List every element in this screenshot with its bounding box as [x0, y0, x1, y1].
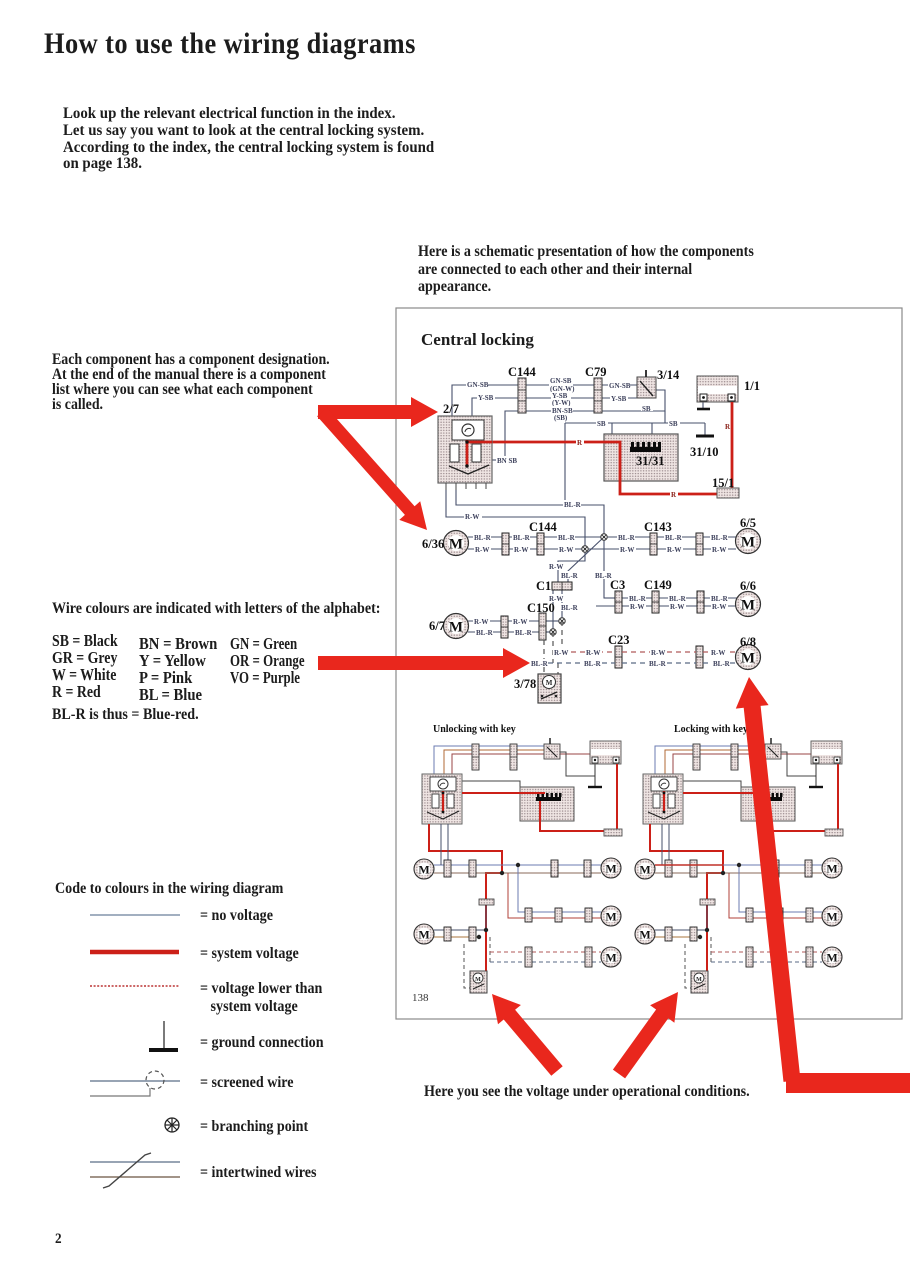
svg-text:6/36: 6/36: [422, 537, 444, 551]
svg-text:BL-R: BL-R: [561, 572, 579, 580]
svg-text:R-W: R-W: [630, 603, 644, 611]
svg-text:R-W: R-W: [549, 563, 563, 571]
svg-text:BL-R: BL-R: [564, 501, 582, 509]
svg-text:C79: C79: [585, 365, 607, 379]
svg-text:R-W: R-W: [554, 649, 568, 657]
svg-text:GN-SB: GN-SB: [467, 381, 489, 389]
svg-text:R-W: R-W: [712, 546, 726, 554]
svg-text:SB: SB: [597, 420, 606, 428]
svg-text:Y-SB: Y-SB: [478, 394, 494, 402]
svg-text:1/1: 1/1: [744, 379, 760, 393]
svg-text:R-W: R-W: [465, 513, 479, 521]
svg-text:Unlocking with key: Unlocking with key: [433, 724, 516, 735]
svg-text:BL-R: BL-R: [711, 595, 729, 603]
svg-text:6/7: 6/7: [429, 619, 445, 633]
svg-text:BL-R: BL-R: [513, 534, 531, 542]
svg-text:BL-R: BL-R: [649, 660, 667, 668]
svg-text:BL-R: BL-R: [595, 572, 613, 580]
svg-text:C23: C23: [608, 633, 630, 647]
svg-text:C143: C143: [644, 520, 672, 534]
svg-text:R-W: R-W: [549, 595, 563, 603]
svg-text:15/1: 15/1: [712, 476, 734, 490]
svg-text:138: 138: [412, 992, 429, 1004]
svg-text:BL-R: BL-R: [669, 595, 687, 603]
svg-text:R-W: R-W: [513, 618, 527, 626]
svg-text:C149: C149: [644, 578, 672, 592]
svg-text:BL-R: BL-R: [665, 534, 683, 542]
svg-text:BL-R: BL-R: [476, 629, 494, 637]
svg-text:3/78: 3/78: [514, 677, 536, 691]
svg-text:GN-SB: GN-SB: [609, 382, 631, 390]
svg-text:BL-R: BL-R: [515, 629, 533, 637]
svg-text:C150: C150: [527, 601, 555, 615]
svg-text:R-W: R-W: [586, 649, 600, 657]
svg-text:BL-R: BL-R: [629, 595, 647, 603]
svg-text:R-W: R-W: [514, 546, 528, 554]
svg-text:R-W: R-W: [475, 546, 489, 554]
svg-text:M: M: [475, 977, 481, 983]
svg-text:31/31: 31/31: [636, 454, 664, 468]
svg-text:2/7: 2/7: [443, 402, 459, 416]
svg-text:(Y-W): (Y-W): [552, 399, 571, 407]
svg-text:R-W: R-W: [712, 603, 726, 611]
svg-text:R: R: [725, 423, 731, 431]
svg-text:C144: C144: [529, 520, 558, 534]
svg-text:Locking with key: Locking with key: [674, 724, 748, 735]
svg-text:BL-R: BL-R: [474, 534, 492, 542]
svg-text:BL-R: BL-R: [558, 534, 576, 542]
svg-text:31/10: 31/10: [690, 445, 718, 459]
svg-text:GN-SB: GN-SB: [550, 377, 572, 385]
svg-text:Y-SB: Y-SB: [611, 395, 627, 403]
svg-text:SB: SB: [642, 405, 651, 413]
svg-text:BL-R: BL-R: [713, 660, 731, 668]
svg-text:6/8: 6/8: [740, 635, 756, 649]
svg-text:BL-R: BL-R: [711, 534, 729, 542]
svg-text:BL-R: BL-R: [561, 604, 579, 612]
svg-text:C1: C1: [536, 579, 551, 593]
svg-text:BN SB: BN SB: [497, 457, 517, 465]
svg-text:M: M: [546, 679, 553, 687]
svg-text:R-W: R-W: [667, 546, 681, 554]
svg-text:6/5: 6/5: [740, 516, 756, 530]
svg-text:R-W: R-W: [651, 649, 665, 657]
svg-text:3/14: 3/14: [657, 368, 680, 382]
svg-text:R-W: R-W: [559, 546, 573, 554]
svg-text:Central locking: Central locking: [421, 330, 534, 349]
svg-text:6/6: 6/6: [740, 579, 756, 593]
svg-text:SB: SB: [669, 420, 678, 428]
svg-text:(SB): (SB): [554, 414, 568, 422]
svg-text:BL-R: BL-R: [531, 660, 549, 668]
svg-text:C144: C144: [508, 365, 537, 379]
svg-text:BL-R: BL-R: [584, 660, 602, 668]
svg-text:R-W: R-W: [620, 546, 634, 554]
svg-text:BL-R: BL-R: [618, 534, 636, 542]
svg-text:C3: C3: [610, 578, 625, 592]
svg-text:R-W: R-W: [670, 603, 684, 611]
svg-text:R-W: R-W: [474, 618, 488, 626]
svg-text:R-W: R-W: [711, 649, 725, 657]
